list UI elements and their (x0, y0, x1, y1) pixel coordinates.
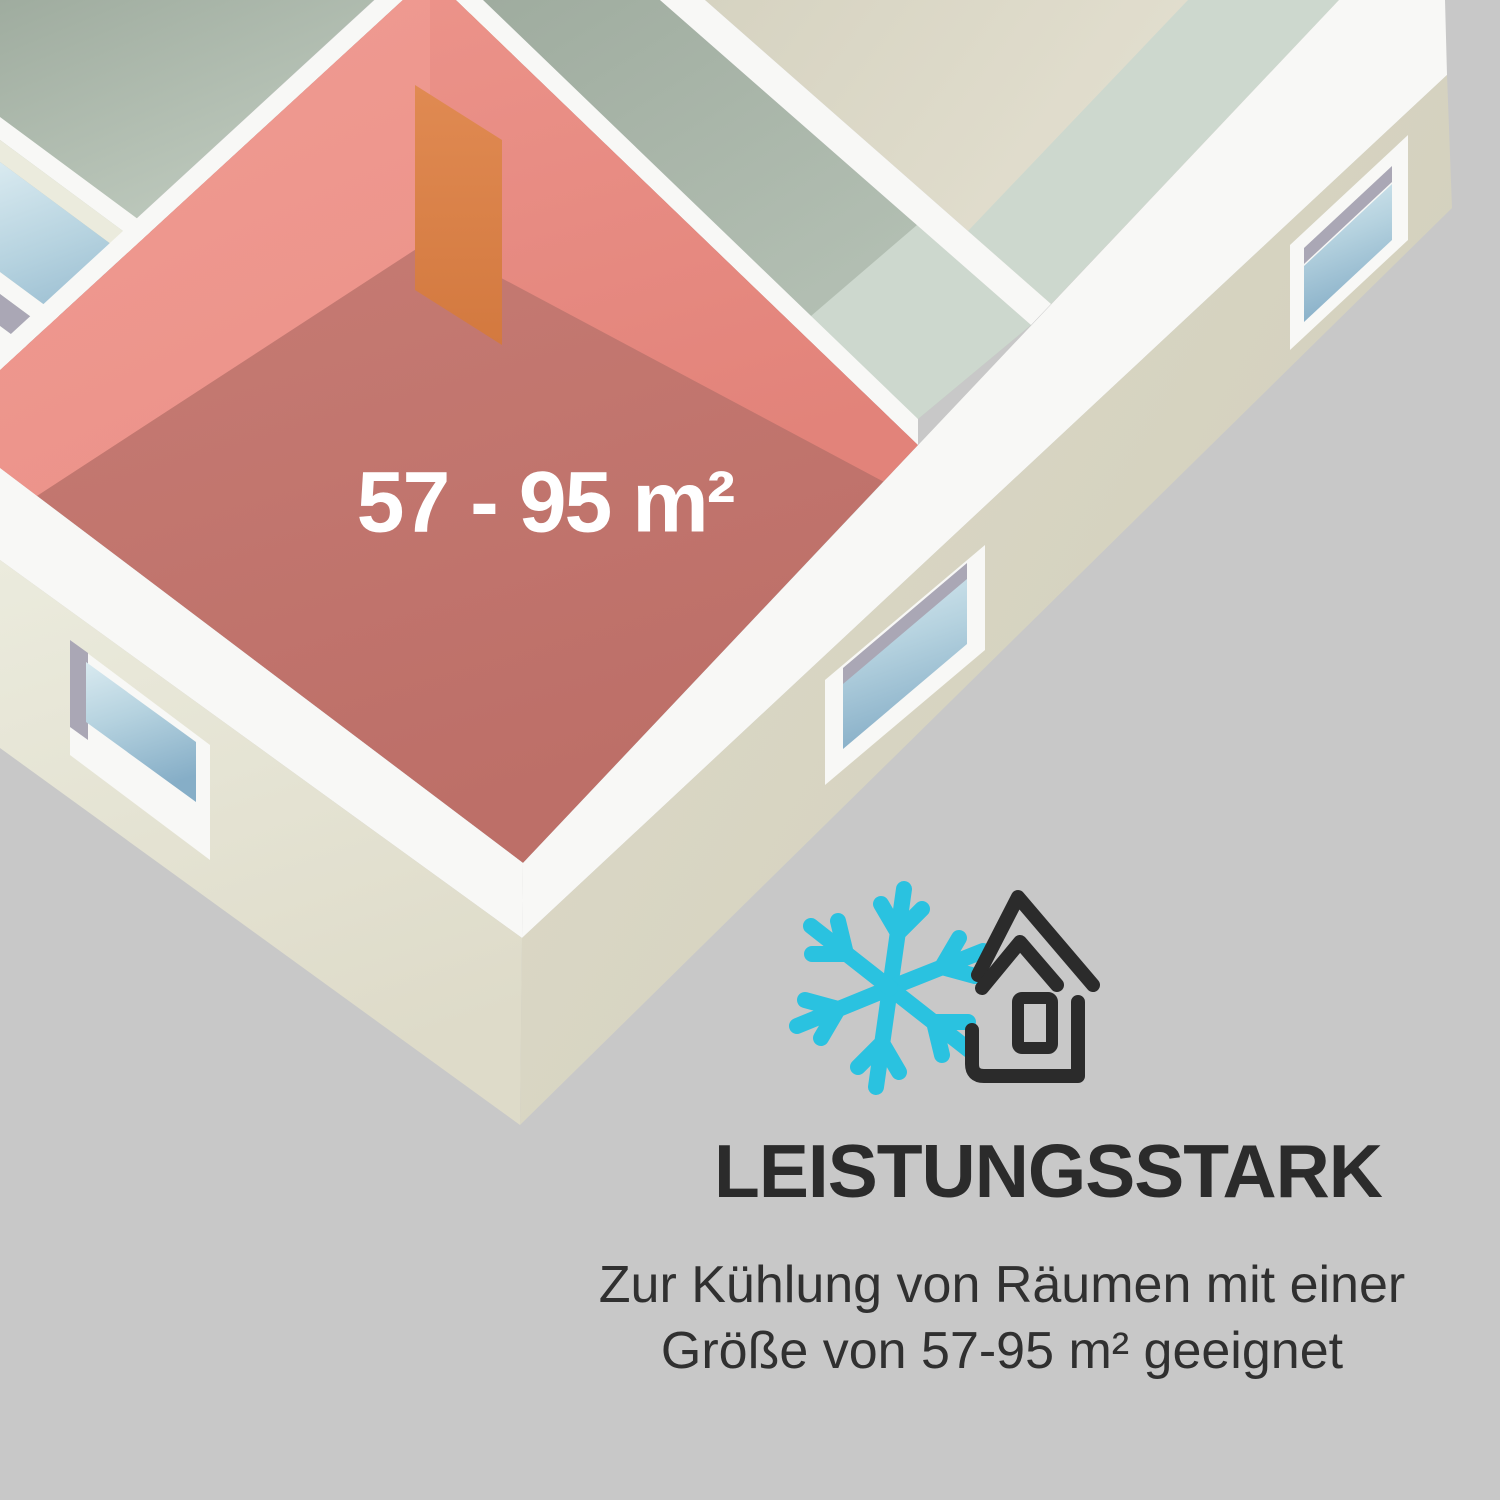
feature-description: Zur Kühlung von Räumen mit einer Größe v… (599, 1252, 1405, 1384)
feature-heading: LEISTUNGSSTARK (714, 1128, 1382, 1214)
feature-description-line1: Zur Kühlung von Räumen mit einer (599, 1252, 1405, 1318)
window-jamb (70, 640, 88, 740)
feature-description-line2: Größe von 57-95 m² geeignet (599, 1318, 1405, 1384)
product-infographic: 57 - 95 m² LEISTUNGSSTARK Zur Kühlung vo… (0, 0, 1500, 1500)
room-area-label: 57 - 95 m² (357, 454, 734, 553)
